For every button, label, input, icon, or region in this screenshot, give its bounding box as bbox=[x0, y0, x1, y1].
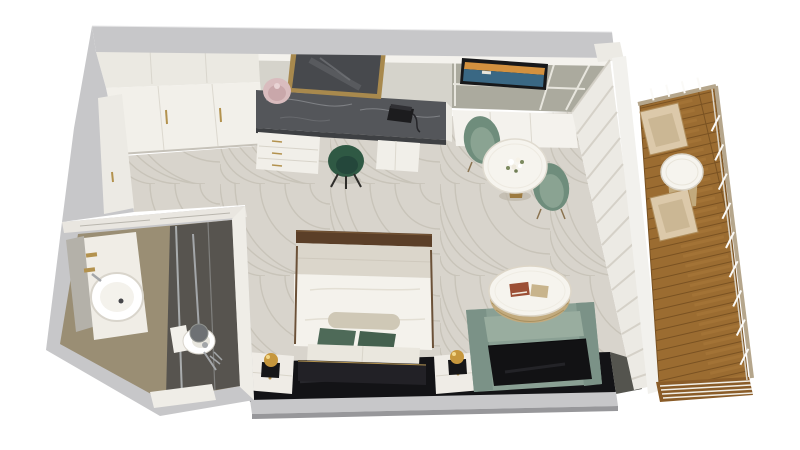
settee-seat-leather bbox=[488, 339, 592, 386]
lamp-right-glint bbox=[452, 352, 456, 356]
shower-diverter bbox=[202, 342, 208, 348]
wardrobe-doors bbox=[106, 82, 266, 154]
lamp-right-ball bbox=[450, 350, 464, 364]
desk-side-return bbox=[446, 102, 452, 142]
bed-bolster bbox=[328, 312, 401, 331]
coffee-table bbox=[489, 266, 571, 323]
shower-rain-head bbox=[190, 324, 208, 342]
basin-bowl bbox=[100, 282, 134, 312]
desk-lamp-top bbox=[274, 83, 280, 89]
desk-drawer-unit bbox=[256, 132, 320, 174]
tv-screen-ship bbox=[482, 71, 491, 75]
bed bbox=[294, 230, 433, 385]
coffee-table-book-tan bbox=[530, 284, 548, 298]
coffee-table-top bbox=[489, 266, 571, 316]
desk-cabinet bbox=[376, 140, 420, 172]
basin-drain bbox=[119, 299, 124, 304]
lamp-left-ball bbox=[264, 353, 278, 367]
desk-chair-seat bbox=[336, 156, 358, 174]
lamp-left-glint bbox=[266, 355, 270, 359]
floor-plan-render bbox=[0, 0, 800, 450]
coffee-table-book-red bbox=[509, 282, 529, 297]
bed-headboard bbox=[298, 360, 426, 385]
floor-plan-canvas bbox=[0, 0, 800, 450]
wardrobe-upper-cabinets bbox=[96, 48, 260, 88]
entry-door-handle bbox=[112, 172, 113, 182]
